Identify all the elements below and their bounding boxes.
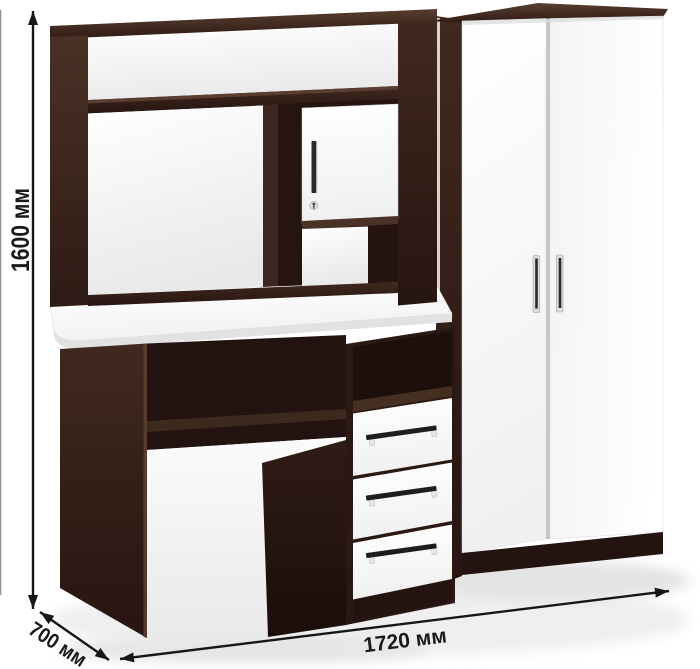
wardrobe-handle-left bbox=[533, 256, 540, 313]
handle-inner bbox=[535, 259, 538, 309]
desk-leg-edge-highlight bbox=[144, 344, 148, 639]
hutch-left-upright bbox=[50, 35, 88, 307]
wardrobe-door-gap bbox=[546, 19, 550, 540]
hutch-under-door-niche-side bbox=[368, 225, 398, 284]
height-dimension-label: 1600 мм bbox=[7, 188, 35, 272]
cupboard-door-handle bbox=[312, 141, 317, 193]
wardrobe-handle-right bbox=[557, 255, 564, 312]
wardrobe-door-right bbox=[550, 16, 663, 539]
hutch-left-open-niche bbox=[88, 106, 263, 296]
hutch bbox=[50, 9, 437, 307]
desk-left-leg-panel bbox=[60, 344, 147, 639]
furniture-dimension-illustration: 1600 мм 700 мм 1720 мм bbox=[0, 0, 700, 669]
pedestal-side-wall bbox=[262, 440, 346, 637]
handle-inner bbox=[559, 258, 562, 308]
desk-base bbox=[60, 327, 455, 647]
hutch-divider bbox=[263, 104, 278, 287]
desk-under-top-panel bbox=[147, 335, 346, 450]
hutch-under-door-niche bbox=[302, 227, 368, 287]
product-image: 1600 мм 700 мм 1720 мм bbox=[0, 0, 700, 669]
keyhole-slot bbox=[313, 205, 314, 209]
hutch-right-column bbox=[398, 20, 437, 306]
cupboard-handle-highlight bbox=[316, 141, 317, 193]
cupboard-keyhole bbox=[310, 201, 318, 209]
wardrobe bbox=[430, 3, 668, 586]
image-left-border bbox=[0, 10, 1, 595]
